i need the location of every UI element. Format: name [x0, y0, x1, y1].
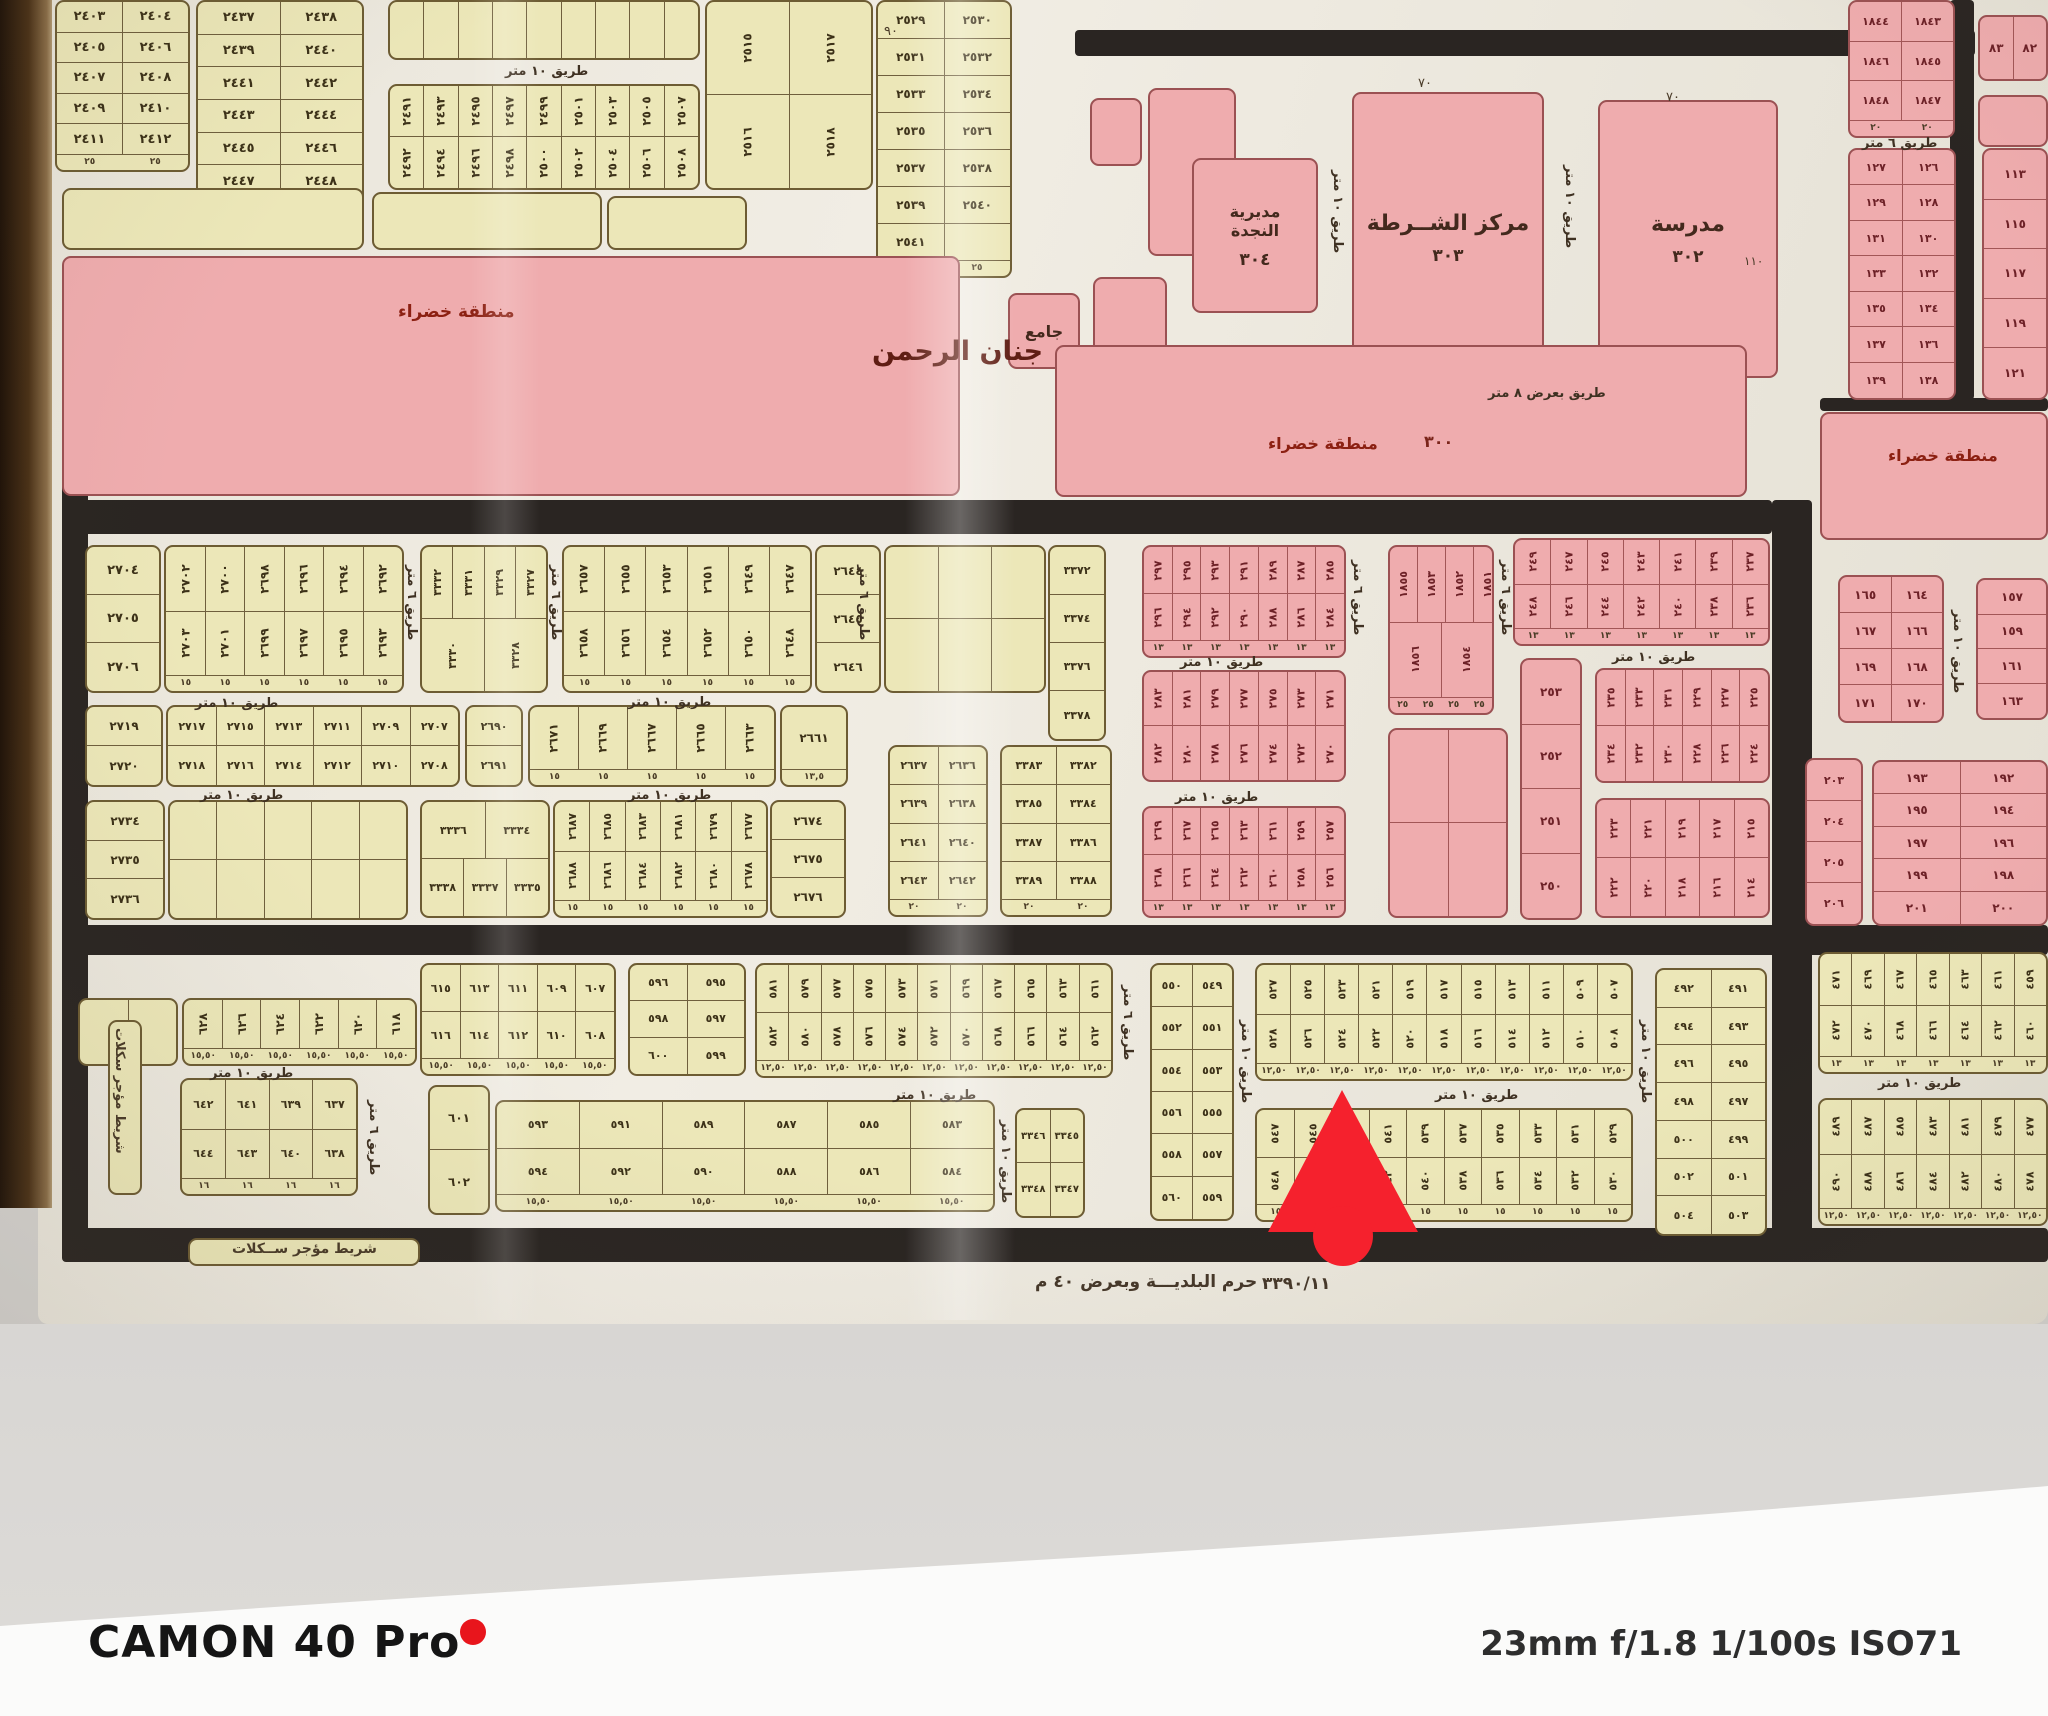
map-paper: ٢٤٠٣٢٤٠٤٢٤٠٥٢٤٠٦٢٤٠٧٢٤٠٨٢٤٠٩٢٤١٠٢٤١١٢٤١٢… — [38, 0, 2048, 1324]
camera-model-text: CAMON 40 Pro — [88, 1617, 460, 1668]
exif-watermark: 23mm f/1.8 1/100s ISO71 — [1480, 1624, 1962, 1664]
red-dot-icon — [460, 1619, 486, 1645]
plot-map-photo: ٢٤٠٣٢٤٠٤٢٤٠٥٢٤٠٦٢٤٠٧٢٤٠٨٢٤٠٩٢٤١٠٢٤١١٢٤١٢… — [0, 0, 2048, 1716]
location-arrow — [38, 0, 2048, 1324]
photo-lower-margin: CAMON 40 Pro 23mm f/1.8 1/100s ISO71 — [0, 1324, 2048, 1716]
white-swoosh-shape — [0, 1476, 2048, 1716]
camera-watermark: CAMON 40 Pro — [88, 1617, 500, 1668]
